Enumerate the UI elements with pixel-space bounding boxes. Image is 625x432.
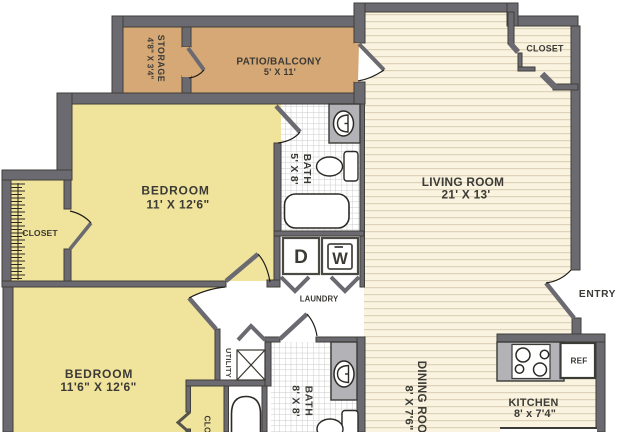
svg-text:REF: REF [571,357,588,366]
svg-text:ENTRY: ENTRY [579,289,616,300]
svg-text:BATH: BATH [303,386,315,417]
svg-text:11'6" X 12'6": 11'6" X 12'6" [60,380,136,394]
svg-text:8' X 8': 8' X 8' [290,385,302,417]
svg-text:4'8" X 3'4": 4'8" X 3'4" [146,37,155,79]
svg-text:CLOSET: CLOSET [22,228,58,238]
svg-text:D: D [294,247,308,268]
svg-text:W: W [332,250,348,268]
svg-text:BEDROOM: BEDROOM [65,367,133,381]
svg-text:BEDROOM: BEDROOM [141,184,209,198]
svg-text:5' X 8': 5' X 8' [288,153,300,185]
svg-text:STORAGE: STORAGE [156,35,166,83]
svg-text:DINING ROOM: DINING ROOM [415,361,427,432]
svg-text:BATH: BATH [301,154,313,185]
svg-text:11' X 12'6": 11' X 12'6" [146,198,209,212]
svg-text:8' X 7'6": 8' X 7'6" [403,385,415,430]
svg-text:PATIO/BALCONY: PATIO/BALCONY [236,57,321,68]
svg-text:LAUNDRY: LAUNDRY [300,295,339,304]
svg-text:CLOSET: CLOSET [203,415,212,432]
svg-text:21' X 13': 21' X 13' [442,188,491,202]
svg-text:UTILITY: UTILITY [224,348,233,378]
svg-text:8' x 7'4": 8' x 7'4" [514,408,556,420]
svg-text:5' X 11': 5' X 11' [264,67,296,77]
svg-text:CLOSET: CLOSET [526,44,564,54]
